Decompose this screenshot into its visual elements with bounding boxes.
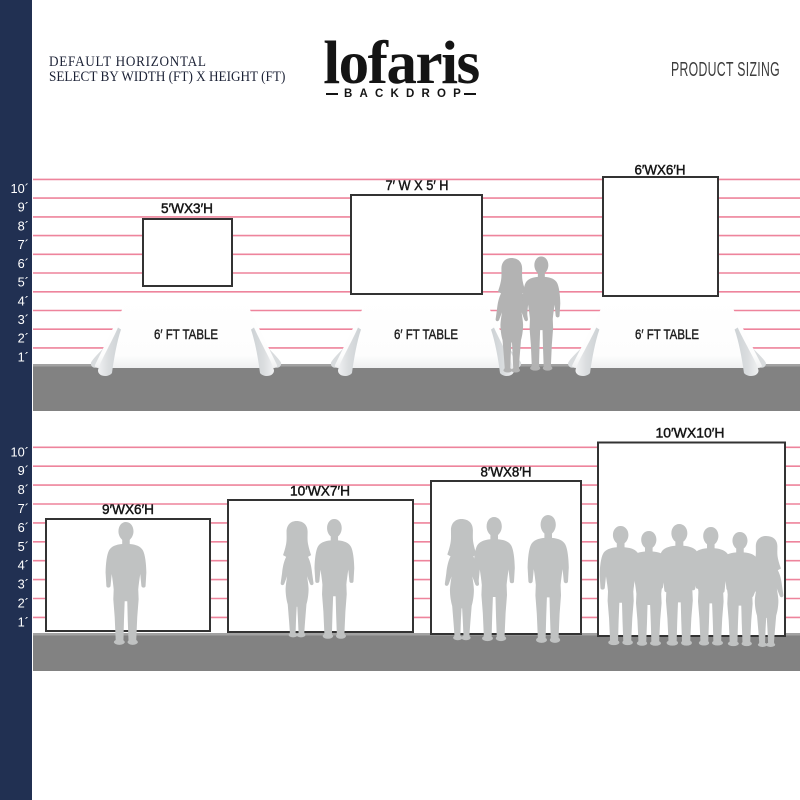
svg-text:9´: 9´ bbox=[18, 463, 29, 478]
svg-text:3´: 3´ bbox=[18, 577, 29, 592]
svg-text:6′ FT TABLE: 6′ FT TABLE bbox=[394, 327, 458, 342]
svg-text:6′WX6′H: 6′WX6′H bbox=[635, 163, 686, 178]
svg-text:10´: 10´ bbox=[11, 444, 30, 459]
svg-text:5´: 5´ bbox=[18, 275, 29, 290]
svg-text:7´: 7´ bbox=[18, 501, 29, 516]
svg-text:1´: 1´ bbox=[18, 349, 29, 364]
svg-text:10′WX10′H: 10′WX10′H bbox=[656, 426, 725, 441]
svg-text:6′ FT TABLE: 6′ FT TABLE bbox=[635, 327, 699, 342]
svg-text:9′WX6′H: 9′WX6′H bbox=[102, 502, 154, 517]
svg-text:4´: 4´ bbox=[18, 293, 29, 308]
svg-text:7´: 7´ bbox=[18, 237, 29, 252]
svg-text:9´: 9´ bbox=[18, 200, 29, 215]
svg-text:6′ FT TABLE: 6′ FT TABLE bbox=[154, 327, 218, 342]
svg-text:7′ W X 5′ H: 7′ W X 5′ H bbox=[386, 178, 449, 193]
svg-text:10´: 10´ bbox=[11, 181, 30, 196]
svg-text:3´: 3´ bbox=[18, 312, 29, 327]
svg-text:8´: 8´ bbox=[18, 218, 29, 233]
svg-text:2´: 2´ bbox=[18, 596, 29, 611]
svg-text:2´: 2´ bbox=[18, 331, 29, 346]
svg-text:1´: 1´ bbox=[18, 614, 29, 629]
svg-text:10′WX7′H: 10′WX7′H bbox=[290, 484, 350, 499]
svg-text:4´: 4´ bbox=[18, 558, 29, 573]
svg-text:6´: 6´ bbox=[18, 520, 29, 535]
svg-text:5´: 5´ bbox=[18, 539, 29, 554]
svg-text:6´: 6´ bbox=[18, 256, 29, 271]
svg-text:8′WX8′H: 8′WX8′H bbox=[481, 465, 532, 480]
svg-text:5′WX3′H: 5′WX3′H bbox=[161, 201, 213, 216]
svg-text:8´: 8´ bbox=[18, 482, 29, 497]
